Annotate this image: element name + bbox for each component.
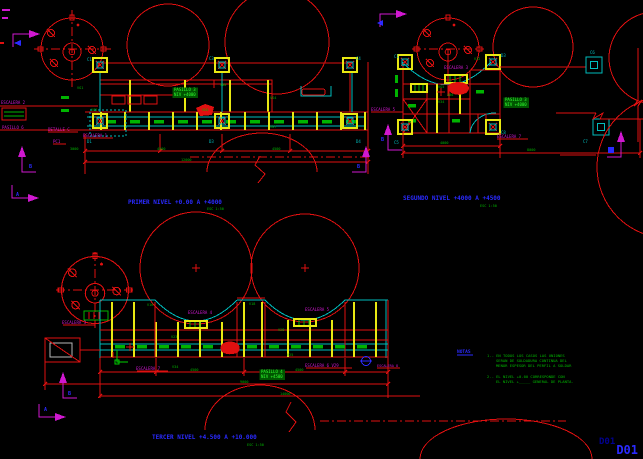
grid-bubble-d4: D4 (356, 139, 361, 144)
break-line (286, 402, 296, 432)
beam-label: V12 (474, 57, 480, 61)
beam-label: VG4 (202, 108, 208, 112)
beam-label: VS4 (270, 96, 276, 100)
pasillo-note: NIV +4000 (505, 102, 527, 107)
scale-note: ESC 1:50 (480, 204, 497, 208)
sheet-code-echo: D01 (599, 437, 615, 447)
section-letter-box (608, 147, 614, 153)
beam-label: VG5 (91, 108, 97, 112)
section-letter: A (44, 407, 47, 413)
scale-note: ESC 1:50 (207, 207, 224, 211)
revision-blob (221, 342, 240, 355)
beam-label: V28 (278, 328, 284, 332)
tanks (412, 7, 573, 96)
grid-bubble-c8: C8 (501, 130, 506, 135)
north-tick-icon (14, 40, 21, 46)
beam-label: V18 (249, 302, 255, 306)
label-escalera-2: ESCALERA 2 (1, 100, 26, 105)
elevation-cross (210, 80, 218, 88)
beam-label: V25 (287, 353, 293, 357)
dim-value: 14000 (280, 392, 291, 396)
dim-value: 4500 (190, 368, 198, 372)
section-letter: B (381, 137, 384, 143)
grid-bubble-c4: C4 (356, 56, 361, 61)
left-annex (45, 338, 100, 362)
elev-label: 400 (447, 93, 453, 97)
grid-bubble-c1: C1 (394, 54, 399, 59)
margin-marks (0, 9, 10, 44)
grid-bubble-c5: C5 (394, 140, 399, 145)
grid-bubble-d3: D3 (209, 139, 214, 144)
sheet-code: D01 (616, 443, 638, 457)
label-escalera-5: ESCALERA 5 (305, 307, 330, 312)
title-primer-nivel: PRIMER NIVEL +0.00 A +4000 (128, 199, 222, 206)
right-edge-tanks (597, 12, 643, 238)
plan-primer-nivel (0, 0, 372, 202)
label-escalera-3: ESCALERA 3 (444, 65, 469, 70)
title-tercer-nivel: TERCER NIVEL +4.500 A +10.000 (152, 434, 257, 441)
scale-note: ESC 1:50 (247, 443, 264, 447)
beam-label: VG7 (270, 125, 276, 129)
dim-value: 9000 (240, 380, 248, 384)
plan-tercer-nivel (39, 212, 592, 459)
tank-dome-arc (205, 385, 315, 430)
section-letter: A (16, 192, 19, 198)
grid-bubble-d1: D1 (87, 139, 92, 144)
title-segundo-nivel: SEGUNDO NIVEL +4000 A +4500 (403, 195, 501, 202)
bottom-tank-arc (420, 419, 592, 459)
dim-value: 4500 (157, 147, 165, 151)
dim-value: 3000 (70, 147, 78, 151)
section-letter: B (68, 391, 71, 397)
label-escalera-7: ESCALERA 7 (136, 366, 161, 371)
label-pasillo-6: PASILLO 6 (2, 125, 24, 130)
pasillo-note: NIV +4500 (261, 374, 283, 379)
note-line: MENOR ESPESOR DEL PERFIL A SOLDAR (496, 363, 572, 368)
dim-value: 12000 (181, 158, 192, 162)
note-line: EL NIVEL +_____ GENERAL DE PLANTA. (496, 379, 574, 384)
label-escalera-1: ESCALERA 1 (83, 133, 108, 138)
dim-value: 4500 (295, 368, 303, 372)
beam-label: V34 (172, 365, 178, 369)
label-escalera-8: ESCALERA 8 (377, 364, 398, 368)
grid-bubble-c3: C3 (209, 56, 214, 61)
section-letter: B (29, 164, 32, 170)
label-escalera-4: ESCALERA 4 (188, 310, 213, 315)
label-pc1: PC1 (53, 139, 61, 144)
dim-value: 4500 (272, 147, 280, 151)
stair-stub (2, 108, 26, 120)
label-escalera-3: ESCALERA 3 (62, 320, 87, 325)
grid-bubble-d3: D3 (501, 53, 506, 58)
elev-label: 400 (220, 83, 226, 87)
break-line (255, 156, 265, 183)
dim-value: 4000 (440, 141, 448, 145)
label-escalera-6: ESCALERA 6 V29 (305, 363, 339, 368)
pasillo-note: NIV +4000 (174, 92, 196, 97)
beam-label: V23 (171, 335, 177, 339)
elevation-cross (437, 88, 445, 96)
break-line (556, 113, 643, 119)
grid-bubble-c1: C1 (87, 57, 92, 62)
cad-canvas[interactable]: C1C3C4D1D3D4VG1VG5VG4VS4VG7400PASILLO 3N… (0, 0, 643, 459)
notas-heading: NOTAS (457, 349, 471, 355)
beam-label: VG5 (438, 85, 444, 89)
label-escalera-5: ESCALERA 5 (371, 107, 396, 112)
walkway (85, 104, 368, 130)
cad-viewport[interactable]: C1C3C4D1D3D4VG1VG5VG4VS4VG7400PASILLO 3N… (0, 0, 643, 459)
annotation-text-layer: C1C3C4D1D3D4VG1VG5VG4VS4VG7400PASILLO 3N… (1, 50, 615, 447)
grid-bubble-c6: C6 (590, 50, 595, 55)
label-detalle-c: DETALLE C (48, 127, 70, 132)
stair-treads (84, 311, 108, 320)
beam-label: VG1 (77, 86, 83, 90)
grid-bubble-c7: C7 (583, 139, 588, 144)
tank-dome-arc (207, 133, 317, 172)
dim-value: 8000 (527, 148, 535, 152)
beam-label: V34 (438, 100, 444, 104)
section-letter: B (357, 164, 360, 170)
beam-label: V16 (147, 303, 153, 307)
